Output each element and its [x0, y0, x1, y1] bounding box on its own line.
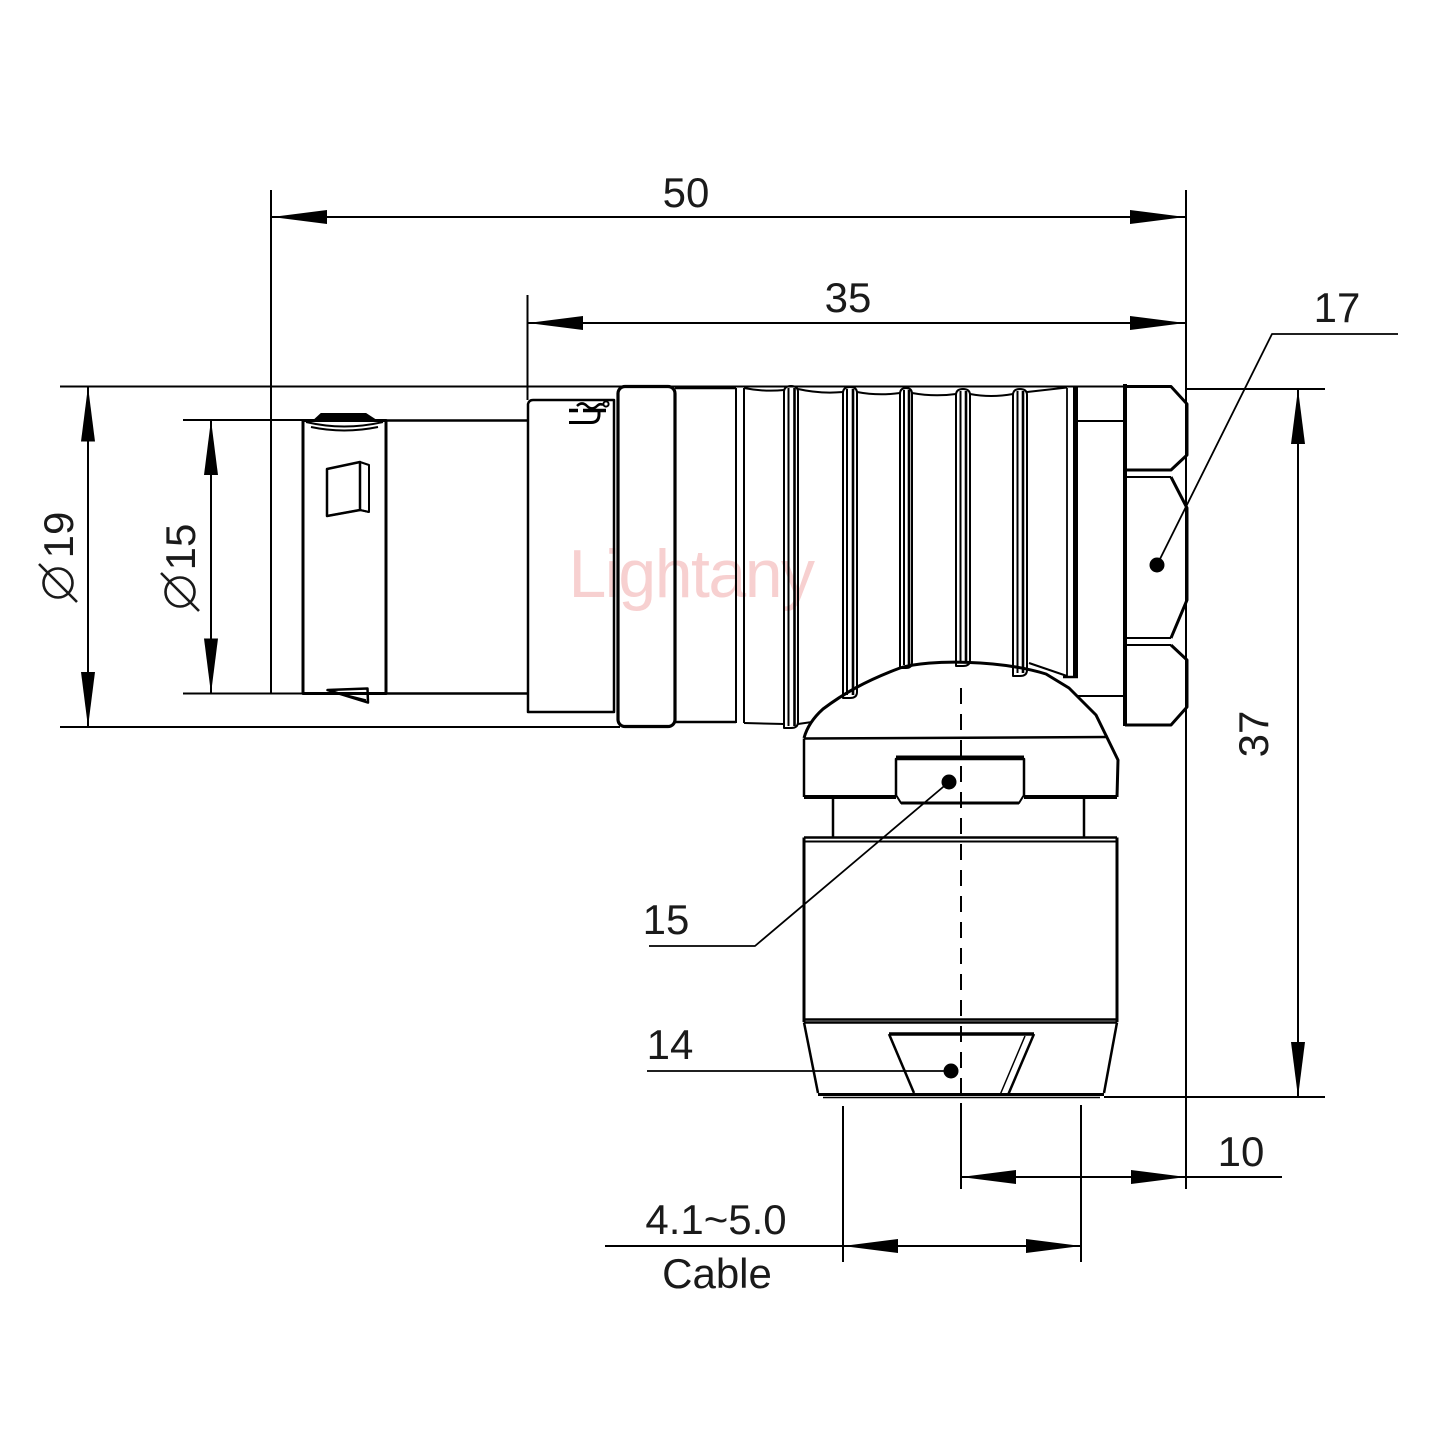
svg-text:Lightany: Lightany: [568, 536, 815, 612]
svg-text:4.1~5.0: 4.1~5.0: [645, 1196, 786, 1243]
svg-text:14: 14: [647, 1021, 694, 1068]
svg-text:15: 15: [643, 896, 690, 943]
svg-text:17: 17: [1314, 284, 1361, 331]
svg-text:19: 19: [35, 512, 82, 559]
svg-text:50: 50: [663, 169, 710, 216]
svg-text:Cable: Cable: [662, 1250, 772, 1297]
svg-text:35: 35: [825, 274, 872, 321]
svg-text:37: 37: [1230, 711, 1277, 758]
svg-text:10: 10: [1218, 1128, 1265, 1175]
svg-text:15: 15: [157, 524, 204, 571]
